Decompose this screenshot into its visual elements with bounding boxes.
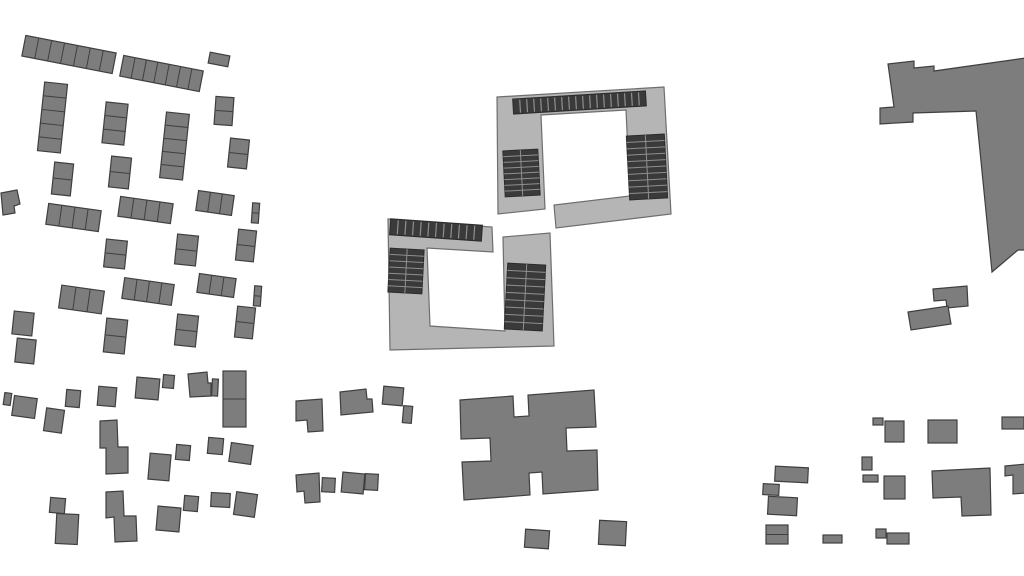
terrace-column	[174, 234, 198, 266]
terrace-row	[59, 285, 105, 314]
detached-house	[229, 443, 253, 465]
detached-house	[296, 399, 323, 432]
terrace-column	[160, 112, 190, 180]
detached-house	[524, 529, 549, 549]
terrace-column	[37, 82, 67, 153]
detached-house	[382, 386, 403, 406]
solar-panel-block-south-east	[504, 263, 545, 331]
l-shaped-house	[1005, 464, 1024, 494]
detached-house	[234, 492, 258, 518]
detached-house	[768, 496, 798, 515]
detached-house	[863, 475, 878, 482]
l-shaped-house	[932, 468, 991, 516]
terrace-column	[102, 102, 128, 145]
terrace-column	[104, 239, 128, 269]
detached-house	[341, 472, 365, 494]
detached-house	[183, 495, 198, 511]
terrace-column	[214, 96, 234, 125]
detached-house	[1, 190, 20, 215]
detached-house	[1002, 417, 1024, 429]
terrace-row	[22, 35, 116, 73]
annex-building	[908, 306, 951, 330]
terrace-column	[174, 314, 198, 347]
terrace-row	[122, 278, 174, 306]
detached-house	[106, 491, 137, 542]
detached-house	[322, 478, 336, 493]
detached-house	[148, 453, 171, 481]
detached-house	[65, 389, 80, 407]
terrace-row	[46, 203, 101, 231]
terrace-row	[197, 274, 236, 298]
detached-house	[97, 386, 117, 406]
detached-house	[43, 408, 64, 433]
detached-house	[402, 406, 412, 424]
detached-house	[3, 393, 12, 406]
detached-house	[175, 444, 190, 460]
terrace-row	[120, 55, 204, 91]
cross-shaped-building	[460, 390, 598, 500]
detached-house	[598, 520, 626, 545]
detached-house	[135, 377, 160, 400]
terrace-row	[118, 196, 173, 223]
detached-house	[12, 311, 34, 336]
detached-house	[884, 476, 905, 499]
terrace-column	[234, 306, 255, 339]
detached-house	[15, 338, 36, 364]
detached-house	[156, 506, 181, 532]
terrace-column	[253, 286, 261, 306]
detached-house	[340, 389, 373, 415]
detached-house	[12, 395, 38, 418]
detached-house	[208, 52, 230, 67]
detached-house	[887, 533, 909, 544]
detached-house	[49, 497, 65, 513]
detached-house	[766, 525, 788, 544]
annex-building	[933, 286, 968, 308]
terrace-column	[103, 318, 127, 354]
detached-house	[211, 493, 231, 508]
terrace-row	[196, 191, 234, 216]
site-plan-svg	[0, 0, 1024, 576]
detached-house	[885, 421, 904, 442]
detached-house	[207, 437, 223, 454]
detached-house	[876, 529, 886, 538]
detached-house	[823, 535, 842, 543]
detached-house	[862, 457, 872, 470]
terrace-column	[108, 156, 131, 189]
terrace-column	[235, 229, 256, 262]
solar-panel-block-north-east	[626, 134, 667, 200]
terrace-column	[228, 138, 250, 169]
detached-house	[188, 372, 211, 397]
detached-house	[365, 474, 379, 491]
detached-house	[928, 420, 957, 443]
detached-house	[763, 484, 780, 496]
l-shaped-building-east	[880, 58, 1024, 272]
solar-panel-block-south-west	[388, 248, 424, 294]
detached-house	[223, 371, 246, 427]
detached-house	[162, 375, 174, 389]
detached-house	[55, 513, 79, 544]
detached-house	[775, 466, 809, 483]
detached-house	[212, 379, 219, 396]
detached-house	[873, 418, 883, 425]
detached-house	[100, 420, 128, 474]
terrace-column	[51, 162, 73, 196]
terrace-column	[251, 203, 259, 223]
solar-panel-block-north-west	[503, 149, 540, 197]
detached-house	[296, 473, 320, 503]
building-footprint-map	[0, 0, 1024, 576]
